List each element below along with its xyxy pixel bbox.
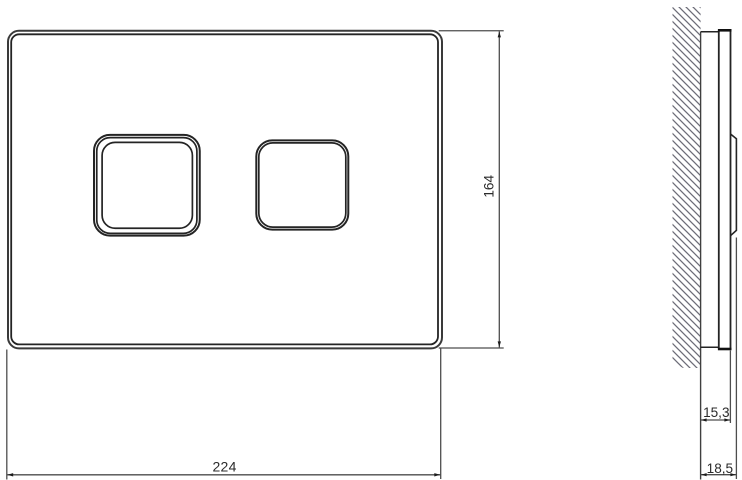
svg-text:15,3: 15,3 [703,405,729,420]
svg-text:164: 164 [482,175,497,198]
svg-text:18,5: 18,5 [707,461,733,476]
svg-text:224: 224 [212,459,236,475]
